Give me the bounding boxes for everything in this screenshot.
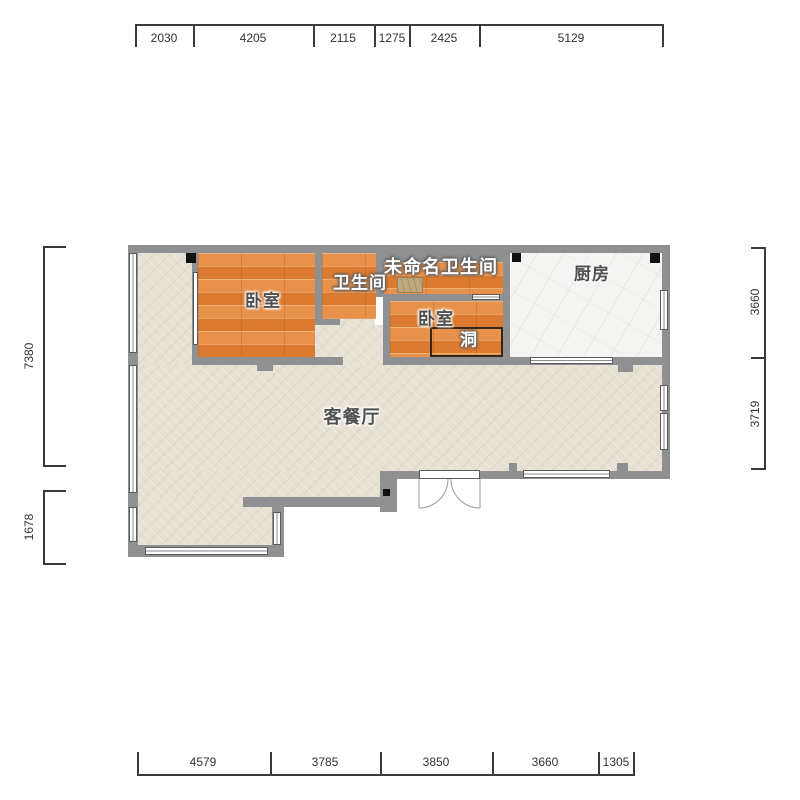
dim-line [137,774,635,776]
bath1-door-gap-floor [340,319,375,325]
window-left-lower [129,507,137,542]
door-stub-bedroom1 [257,365,273,371]
window-kitchen-right [660,290,668,330]
floor-plan-canvas: 卧室 卫生间 未命名卫生间 卧室 洞 厨房 客餐厅 2030 4205 2115… [0,0,800,800]
room-label-unnamed-bath: 未命名卫生间 [384,253,498,279]
wall-bedroom1-bottom [192,357,343,365]
window-unnamed-bath [472,294,500,300]
room-label-bath1: 卫生间 [333,269,387,294]
living-floor-main [136,365,662,471]
dim-tick [43,465,66,467]
dim-tick [137,752,139,776]
stub-below-kitchen [618,365,633,372]
room-label-bedroom2: 卧室 [418,305,454,330]
stub-bottom-wall-2 [617,463,628,471]
bath-counter-fixture [397,277,423,293]
dim-tick [751,247,766,249]
dim-line [135,24,664,26]
dim-value: 3785 [295,754,355,770]
window-balcony-bottom [145,547,268,555]
window-left-middle [129,365,137,493]
window-balcony-right [273,512,281,545]
dim-value: 4205 [223,30,283,46]
dim-tick [380,752,382,776]
stub-bottom-wall-1 [509,463,517,471]
dim-value: 3850 [406,754,466,770]
wall-bath1-bottom [315,319,340,325]
window-living-right-lower [660,413,668,450]
dim-value: 3660 [515,754,575,770]
dim-tick [43,246,66,248]
dim-value: 4579 [173,754,233,770]
dim-tick [43,490,66,492]
pillar-kitchen-left [512,253,521,262]
dim-tick [751,468,766,470]
living-floor-lower [136,471,380,497]
pillar-entry [383,489,390,496]
wall-bedroom1-right [315,253,322,325]
window-kitchen-bottom [530,357,613,364]
dim-value: 3719 [747,384,763,444]
dim-tick [751,357,766,359]
dim-value: 2425 [414,30,474,46]
room-label-bedroom1: 卧室 [245,287,281,312]
dim-value: 3660 [747,272,763,332]
room-label-kitchen: 厨房 [574,260,610,285]
wall-bedroom2-bottom [387,357,510,365]
dim-tick [479,24,481,47]
dim-value: 1678 [21,497,37,557]
dim-value: 7380 [21,326,37,386]
window-living-right-upper [660,385,668,411]
room-label-living: 客餐厅 [324,403,381,429]
wall-kitchen-left [503,253,510,365]
dim-line [43,246,45,467]
room-label-hole: 洞 [460,326,478,351]
dim-value: 5129 [541,30,601,46]
dim-tick [662,24,664,47]
dim-line [43,490,45,565]
pillar-kitchen-right [650,253,660,263]
dim-tick [270,752,272,776]
window-bottom-wall [523,470,610,478]
dim-tick [492,752,494,776]
dim-value: 1305 [586,754,646,770]
dim-value: 1275 [362,30,422,46]
window-left-upper [129,253,137,353]
dim-tick [43,563,66,565]
entry-door-leaves [419,470,480,479]
pillar-top-left [186,253,196,263]
dim-value: 2030 [134,30,194,46]
window-bedroom1 [193,272,198,345]
wall-step [243,497,397,507]
wall-bedroom2-left [383,297,390,365]
